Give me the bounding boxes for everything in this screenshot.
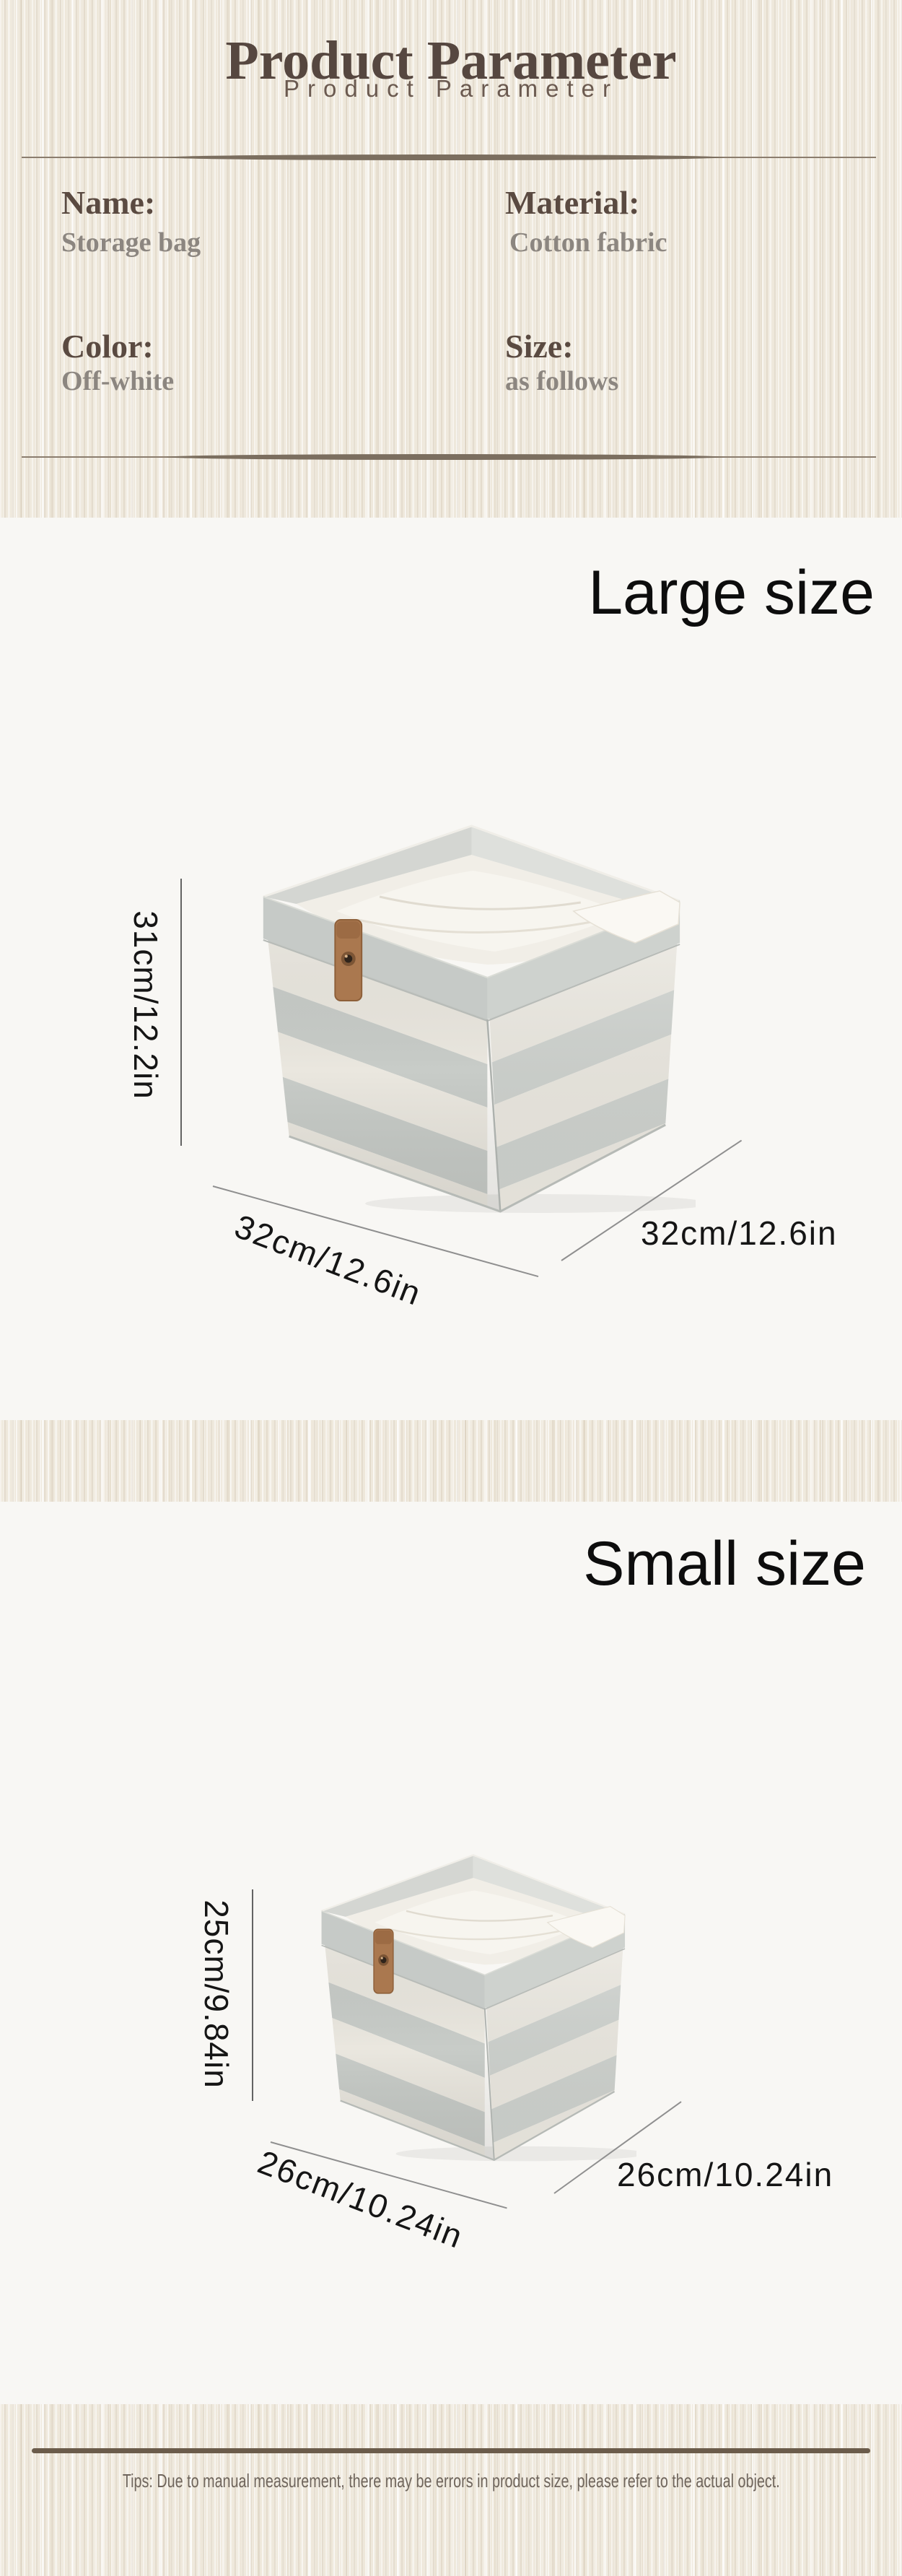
storage-box-illustration-large <box>236 810 696 1214</box>
large-size-title: Large size <box>588 562 875 624</box>
storage-box-illustration-small <box>302 1842 636 2162</box>
page-subtitle: Product Parameter <box>0 75 902 103</box>
large-depth-dimension-label: 32cm/12.6in <box>641 1217 838 1250</box>
tips-text: Tips: Due to manual measurement, there m… <box>0 2468 902 2494</box>
param-name-value: Storage bag <box>61 228 201 258</box>
small-depth-dimension-label: 26cm/10.24in <box>617 2158 833 2191</box>
param-material-label: Material: <box>505 185 639 222</box>
divider-lens <box>166 155 723 160</box>
footer-divider-line <box>32 2448 870 2453</box>
small-height-dimension-line <box>252 1889 253 2101</box>
param-size-value: as follows <box>505 367 618 397</box>
param-color-value: Off-white <box>61 367 174 397</box>
leather-tab <box>335 920 362 1001</box>
divider-lens <box>166 454 723 460</box>
small-height-dimension-label: 25cm/9.84in <box>200 1900 233 2089</box>
storage-box-art <box>263 826 696 1214</box>
param-material-value: Cotton fabric <box>509 228 667 258</box>
param-name-label: Name: <box>61 185 155 222</box>
small-size-title: Small size <box>583 1533 866 1595</box>
param-size-label: Size: <box>505 328 574 365</box>
top-divider <box>0 152 902 162</box>
param-color-label: Color: <box>61 328 154 365</box>
tips-text-content: Tips: Due to manual measurement, there m… <box>123 2468 780 2494</box>
bottom-divider <box>0 452 902 462</box>
large-height-dimension-line <box>180 879 182 1146</box>
product-parameter-page: Product Parameter Product Parameter Name… <box>0 0 902 2576</box>
large-height-dimension-label: 31cm/12.2in <box>129 910 162 1100</box>
